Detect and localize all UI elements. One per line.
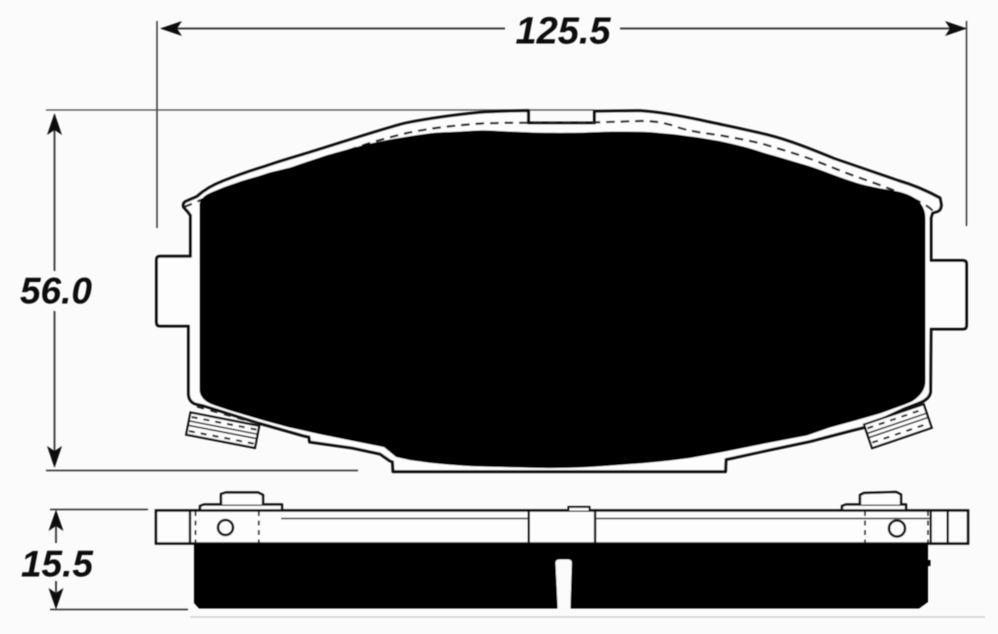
svg-text:56.0: 56.0 (20, 271, 92, 312)
svg-text:125.5: 125.5 (515, 11, 611, 53)
svg-text:15.5: 15.5 (21, 544, 94, 585)
